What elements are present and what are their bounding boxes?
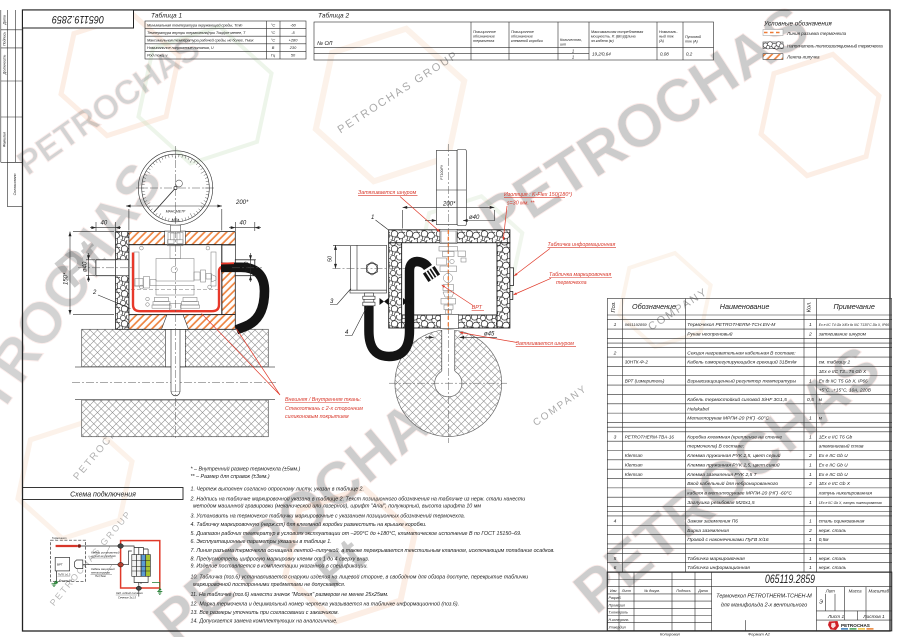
svg-text:1: 1 (809, 565, 812, 571)
svg-text:Линия разъема термочехла: Линия разъема термочехла (786, 31, 847, 36)
svg-text:230: 230 (289, 45, 297, 50)
svg-text:Табличка информационная: Табличка информационная (687, 565, 750, 571)
svg-text:затягивание шнуром: затягивание шнуром (818, 332, 867, 337)
svg-text:Таблица 1: Таблица 1 (151, 12, 182, 20)
svg-text:Примечание: Примечание (834, 302, 875, 311)
svg-text:°С: °С (271, 30, 276, 35)
svg-text:Лист 1: Лист 1 (827, 614, 845, 620)
svg-text:1: 1 (572, 55, 574, 60)
svg-text:Т.контроль: Т.контроль (609, 611, 628, 615)
svg-text:нерж. сталь: нерж. сталь (819, 565, 847, 570)
svg-text:Номинальное напряжение питания: Номинальное напряжение питания, U (147, 45, 214, 50)
svg-text:Изм: Изм (610, 589, 617, 593)
svg-text:Рукав неопреновый: Рукав неопреновый (687, 331, 732, 338)
svg-text:Зажим заземления П6: Зажим заземления П6 (687, 519, 738, 525)
svg-text:Провод с наконечниками ПуГВ Х/: Провод с наконечниками ПуГВ Х/16 (687, 537, 769, 543)
svg-text:Лист: Лист (621, 589, 631, 593)
svg-text:Термочехол: Термочехол (52, 536, 67, 540)
svg-text:Клемма пружинная PYK 2,5, цвет: Клемма пружинная PYK 2,5, цвет серый (687, 452, 780, 459)
svg-text:Фамилия: Фамилия (3, 132, 7, 147)
svg-text:термочехла) В составе:: термочехла) В составе: (687, 444, 744, 450)
svg-text:ВРТ: ВРТ (472, 305, 483, 311)
svg-text:1. Чертеж выполнен согласно оп: 1. Чертеж выполнен согласно опросному ли… (191, 487, 364, 493)
svg-text:МАНОМЕТР: МАНОМЕТР (166, 210, 186, 214)
svg-text:ø40: ø40 (245, 261, 251, 272)
svg-text:мощность, P, (Вт)/Длина: мощность, P, (Вт)/Длина (591, 35, 636, 39)
svg-text:Пусковой: Пусковой (685, 35, 701, 39)
svg-text:065119.2859: 065119.2859 (52, 13, 104, 25)
svg-text:9. Изделие поставляется в комп: 9. Изделие поставляется в комплектации у… (191, 563, 368, 570)
svg-text:+5°С...+15°С, 10А, 220В: +5°С...+15°С, 10А, 220В (819, 388, 871, 393)
svg-text:2: 2 (808, 481, 812, 487)
svg-text:Э: Э (819, 600, 823, 606)
svg-text:Бирка заземления: Бирка заземления (687, 528, 729, 534)
svg-text:Кол.: Кол. (806, 301, 812, 312)
svg-text:В: В (272, 45, 275, 50)
svg-text:200*: 200* (235, 200, 249, 206)
svg-text:0,5: 0,5 (807, 397, 814, 403)
svg-text:силиконовым покрытием: силиконовым покрытием (285, 414, 349, 420)
svg-text:1: 1 (809, 519, 812, 525)
svg-text:Утвердил: Утвердил (609, 625, 626, 629)
svg-text:ный ток: ный ток (659, 35, 674, 39)
svg-text:11. На табличке (поз.6) нанест: 11. На табличке (поз.6) нанести значок "… (191, 592, 389, 598)
svg-text:40: 40 (101, 221, 108, 227)
svg-text:* – Внутренний размер термоче: * – Внутренний размер термочехла (±5мм.) (191, 466, 301, 473)
svg-text:7. Линия разъема термочехла ос: 7. Линия разъема термочехла оснащена лен… (191, 547, 555, 554)
svg-text:2: 2 (808, 528, 812, 534)
svg-text:1Ex e IIC Gb X, латунь никелир: 1Ex e IIC Gb X, латунь никелированная (819, 501, 882, 505)
svg-text:латунь никелированная: латунь никелированная (818, 491, 873, 496)
svg-text:Ex e IIC Gb U: Ex e IIC Gb U (819, 472, 849, 477)
svg-text:s=30 мм. **: s=30 мм. ** (507, 201, 535, 207)
svg-text:5: 5 (614, 556, 617, 562)
svg-text:14. Допускается замена комплек: 14. Допускается замена комплектующих на … (191, 618, 338, 624)
svg-text:Температура внутри термочехла(: Температура внутри термочехла(при Tокр)н… (147, 30, 246, 35)
svg-text:2: 2 (808, 453, 812, 459)
svg-text:PETROCHAS: PETROCHAS (841, 623, 870, 628)
svg-text:Изоляция : K-Flex 150(180°): Изоляция : K-Flex 150(180°) (504, 192, 572, 198)
svg-text:Klemsan: Klemsan (625, 472, 643, 477)
svg-text:6. Эксплуатационные параметры: 6. Эксплуатационные параметры указаны в … (191, 539, 332, 545)
svg-text:1: 1 (809, 537, 812, 543)
svg-text:1Ex e IIC T3...T6 Gb X: 1Ex e IIC T3...T6 Gb X (819, 369, 867, 374)
svg-text:шт: шт (560, 43, 566, 47)
svg-text:Наименование: Наименование (720, 302, 770, 311)
svg-text:Helukabel: Helukabel (687, 406, 710, 412)
svg-text:Лента-липучка: Лента-липучка (786, 55, 820, 60)
svg-text:8. Предусмотреть цифровую марк: 8. Предусмотреть цифровую маркировку кле… (191, 556, 370, 562)
svg-text:МПа: МПа (172, 218, 179, 222)
svg-text:2: 2 (808, 332, 812, 338)
svg-text:Разраб.: Разраб. (609, 596, 622, 600)
svg-text:0,2: 0,2 (686, 52, 693, 57)
svg-text:2: 2 (613, 350, 617, 356)
svg-text:Затягивается шнуром: Затягивается шнуром (516, 341, 575, 347)
svg-text:30НТК-Ф-2: 30НТК-Ф-2 (625, 360, 649, 365)
svg-text:Род тока, ν: Род тока, ν (147, 53, 167, 58)
svg-text:Формат А2: Формат А2 (748, 632, 771, 637)
svg-text:Позиционное: Позиционное (473, 30, 496, 34)
svg-text:4: 4 (614, 519, 617, 525)
svg-text:термочехла: термочехла (556, 280, 587, 286)
svg-text:Затягивается шнуром: Затягивается шнуром (358, 190, 417, 196)
svg-text:1: 1 (809, 378, 812, 384)
svg-text:обозначение: обозначение (511, 35, 533, 39)
svg-text:Максимальная температура рабоч: Максимальная температура рабочей среды, … (147, 38, 255, 43)
svg-text:Табличка маркировочная: Табличка маркировочная (687, 556, 745, 562)
svg-text:Табличка информационная: Табличка информационная (548, 242, 616, 248)
svg-text:Взрывозащищенный регулятор тем: Взрывозащищенный регулятор температуры (687, 377, 796, 384)
svg-text:1: 1 (809, 500, 812, 506)
svg-text:Кабель саморегулирующийся грею: Кабель саморегулирующийся греющий 31Вт/м (687, 359, 797, 366)
svg-text:(А): (А) (659, 39, 665, 43)
svg-text:Согласовано: Согласовано (13, 173, 17, 195)
svg-text:5. Диапазон рабочих температур: 5. Диапазон рабочих температур в условия… (191, 531, 522, 537)
svg-text:1: 1 (614, 322, 617, 328)
svg-text:Лит: Лит (825, 589, 835, 594)
svg-text:эл.кабеля (м): эл.кабеля (м) (591, 39, 614, 43)
svg-text:Подпись: Подпись (676, 589, 690, 593)
svg-text:ВРТ (измеритель): ВРТ (измеритель) (625, 378, 665, 383)
svg-text:1: 1 (371, 215, 374, 221)
svg-text:Обозначение: Обозначение (632, 302, 676, 311)
svg-text:13. Все размеры уточнить при с: 13. Все размеры уточнить при согласовани… (191, 610, 340, 616)
svg-text:Проверил: Проверил (609, 603, 625, 607)
svg-text:Ex tb IIC T5 Gb X, IP66: Ex tb IIC T5 Gb X, IP66 (819, 378, 868, 383)
svg-text:Должность: Должность (3, 54, 7, 75)
svg-text:Каб. гибкий питания: Каб. гибкий питания (116, 591, 143, 595)
svg-text:Масса: Масса (849, 589, 863, 594)
svg-text:PT100/Pt: PT100/Pt (440, 164, 444, 180)
svg-text:Условные обозначения: Условные обозначения (763, 20, 832, 28)
svg-text:Таблица 2: Таблица 2 (318, 12, 349, 20)
svg-text:маркировочной посторонними пре: маркировочной посторонними предметами не… (193, 581, 345, 588)
svg-text:1: 1 (809, 434, 812, 440)
svg-text:200*: 200* (442, 202, 456, 208)
svg-text:12. Марка термочехла и децимал: 12. Марка термочехла и децимальный номер… (191, 600, 460, 607)
svg-text:Термочехол PETROTHERM-TCH.EN-M: Термочехол PETROTHERM-TCH.EN-M (687, 322, 776, 328)
svg-text:для манифольда 2-х вентильного: для манифольда 2-х вентильного (721, 603, 807, 609)
svg-text:гибкий не требует: гибкий не требует (91, 554, 117, 558)
svg-text:Номиналь-: Номиналь- (659, 30, 678, 34)
svg-text:Поз.: Поз. (611, 301, 617, 312)
svg-text:Масштаб: Масштаб (869, 589, 890, 594)
svg-text:1: 1 (809, 462, 812, 468)
svg-text:№ докум.: № докум. (644, 589, 660, 593)
svg-text:обозначение: обозначение (473, 35, 495, 39)
svg-text:Klemsan N6: Klemsan N6 (59, 580, 73, 583)
svg-text:1: 1 (572, 48, 574, 53)
svg-text:ток (А): ток (А) (685, 40, 699, 44)
svg-text:2: 2 (92, 290, 97, 296)
svg-text:Ex e IIC Gb U: Ex e IIC Gb U (819, 462, 849, 467)
svg-text:10. Табличка (поз.6) устанавли: 10. Табличка (поз.6) устанавливается сна… (191, 573, 529, 580)
svg-text:1: 1 (809, 322, 812, 328)
svg-text:150*: 150* (64, 272, 70, 285)
svg-text:Термочехол PETROTHERM-TCHEH-M: Термочехол PETROTHERM-TCHEH-M (716, 594, 812, 600)
svg-text:°С: °С (271, 22, 276, 27)
svg-text:Количество,: Количество, (560, 38, 582, 42)
svg-text:ПуГВ 1х1,5: ПуГВ 1х1,5 (58, 574, 71, 577)
svg-text:Заглушка резьбовая М20х1,5: Заглушка резьбовая М20х1,5 (687, 500, 755, 506)
svg-text:клеммной коробки: клеммной коробки (511, 39, 543, 43)
svg-text:см. таблицу 2: см. таблицу 2 (819, 360, 851, 365)
svg-text:PETROTHERM-TBA-16: PETROTHERM-TBA-16 (625, 434, 675, 439)
svg-text:термочехла: термочехла (473, 39, 494, 43)
svg-text:Кабель установочный: Кабель установочный (91, 551, 120, 555)
svg-text:1Ex e IIC T6 Gb: 1Ex e IIC T6 Gb (819, 434, 853, 439)
svg-text:Подпись: Подпись (3, 32, 7, 46)
svg-text:-60: -60 (290, 22, 296, 27)
svg-text:Сечение 3х1,5: Сечение 3х1,5 (118, 596, 136, 600)
svg-text:0,08: 0,08 (660, 52, 669, 57)
svg-text:Позиционное: Позиционное (511, 30, 534, 34)
svg-text:Секция нагревательная кабельна: Секция нагревательная кабельная В состав… (687, 350, 796, 356)
svg-text:Клемма пружинная PYK 2,5, цвет: Клемма пружинная PYK 2,5, цвет синий (687, 461, 780, 468)
svg-text:Максимальная потребляемая: Максимальная потребляемая (591, 30, 643, 34)
svg-text:сталь оцинкованная: сталь оцинкованная (819, 519, 865, 524)
svg-text:ø40: ø40 (469, 215, 480, 221)
svg-text:3: 3 (614, 434, 617, 440)
svg-text:0,5м: 0,5м (819, 537, 830, 542)
svg-text:6: 6 (614, 565, 617, 571)
svg-text:нерж. сталь: нерж. сталь (819, 556, 847, 561)
svg-text:19,2/0,64: 19,2/0,64 (592, 52, 611, 57)
svg-text:Кабель защитный: Кабель защитный (91, 567, 115, 571)
svg-text:1Ex e IIC Gb X: 1Ex e IIC Gb X (819, 481, 851, 486)
svg-text:°С: °С (271, 38, 276, 43)
svg-text:Листов 1: Листов 1 (862, 614, 885, 620)
svg-text:Ввод кабельный для небронирова: Ввод кабельный для небронированного (687, 480, 778, 487)
svg-text:1: 1 (809, 556, 812, 562)
svg-text:Н.контроль: Н.контроль (609, 618, 629, 622)
svg-text:Ex e IIC T4 Gb X/Ex tb IIIC T1: Ex e IIC T4 Gb X/Ex tb IIIC T135°C Db X,… (819, 323, 889, 327)
svg-text:нерж. сталь: нерж. сталь (819, 528, 847, 533)
svg-text:4. Табличку маркировочную (нер: 4. Табличку маркировочную (нерж.ст) для … (191, 521, 427, 528)
svg-text:065119.2859: 065119.2859 (765, 574, 815, 586)
svg-text:Дата: Дата (3, 15, 7, 25)
svg-text:1: 1 (809, 416, 812, 422)
svg-text:Наполнитель теплоизоляционный: Наполнитель теплоизоляционный термочехла (787, 42, 883, 48)
svg-text:Металлорукав МРПИ-20 (НГ) -60°: Металлорукав МРПИ-20 (НГ) -60°С (687, 416, 769, 422)
svg-text:Коробка клеммная (крепление на: Коробка клеммная (крепление на стенке (687, 434, 782, 440)
svg-text:50: 50 (328, 255, 334, 262)
svg-text:** – Размер для справок (±3мм.: ** – Размер для справок (±3мм.) (191, 474, 270, 480)
svg-text:Стеклоткань с 2-х сторонним: Стеклоткань с 2-х сторонним (285, 406, 363, 412)
svg-text:№ ОЛ: № ОЛ (317, 41, 333, 47)
svg-text:методом машинной гравировки (м: методом машинной гравировки (механическо… (193, 503, 481, 510)
svg-text:Минимальная температура окружа: Минимальная температура окружающей среды… (147, 22, 242, 27)
svg-text:+280: +280 (289, 38, 299, 43)
svg-text:3. Установить на термочехол та: 3. Установить на термочехол таблички мар… (191, 512, 466, 519)
svg-text:ВРТ: ВРТ (57, 563, 63, 567)
svg-text:40: 40 (240, 221, 247, 227)
svg-text:0651192859: 0651192859 (625, 322, 648, 327)
svg-text:Копировал: Копировал (660, 632, 681, 637)
svg-text:Дата: Дата (697, 589, 707, 593)
svg-text:Klemsan: Klemsan (625, 462, 643, 467)
svg-text:Клемма заземления PYK 2,5 T: Клемма заземления PYK 2,5 T (687, 472, 757, 478)
svg-text:Внешняя / Внутренняя ткань:: Внешняя / Внутренняя ткань: (285, 397, 362, 403)
svg-text:Кабель термостойкий силовой Si: Кабель термостойкий силовой SiHF 3G1,5 (687, 396, 787, 403)
svg-text:1: 1 (809, 472, 812, 478)
svg-text:алюминиевый сплав: алюминиевый сплав (819, 443, 864, 449)
svg-text:Ex e IIC Gb U: Ex e IIC Gb U (819, 453, 849, 458)
svg-text:Табличка маркировочная: Табличка маркировочная (549, 272, 611, 278)
svg-text:ø40: ø40 (83, 261, 89, 272)
svg-text:Klemsan: Klemsan (625, 453, 643, 458)
svg-text:2. Надпись на табличке маркиро: 2. Надпись на табличке маркировочной ука… (190, 495, 526, 502)
svg-text:Схема подключения: Схема подключения (70, 490, 136, 498)
svg-text:кабеля в металлорукаве МРПИ-20: кабеля в металлорукаве МРПИ-20 (НГ) -60°… (687, 491, 792, 497)
